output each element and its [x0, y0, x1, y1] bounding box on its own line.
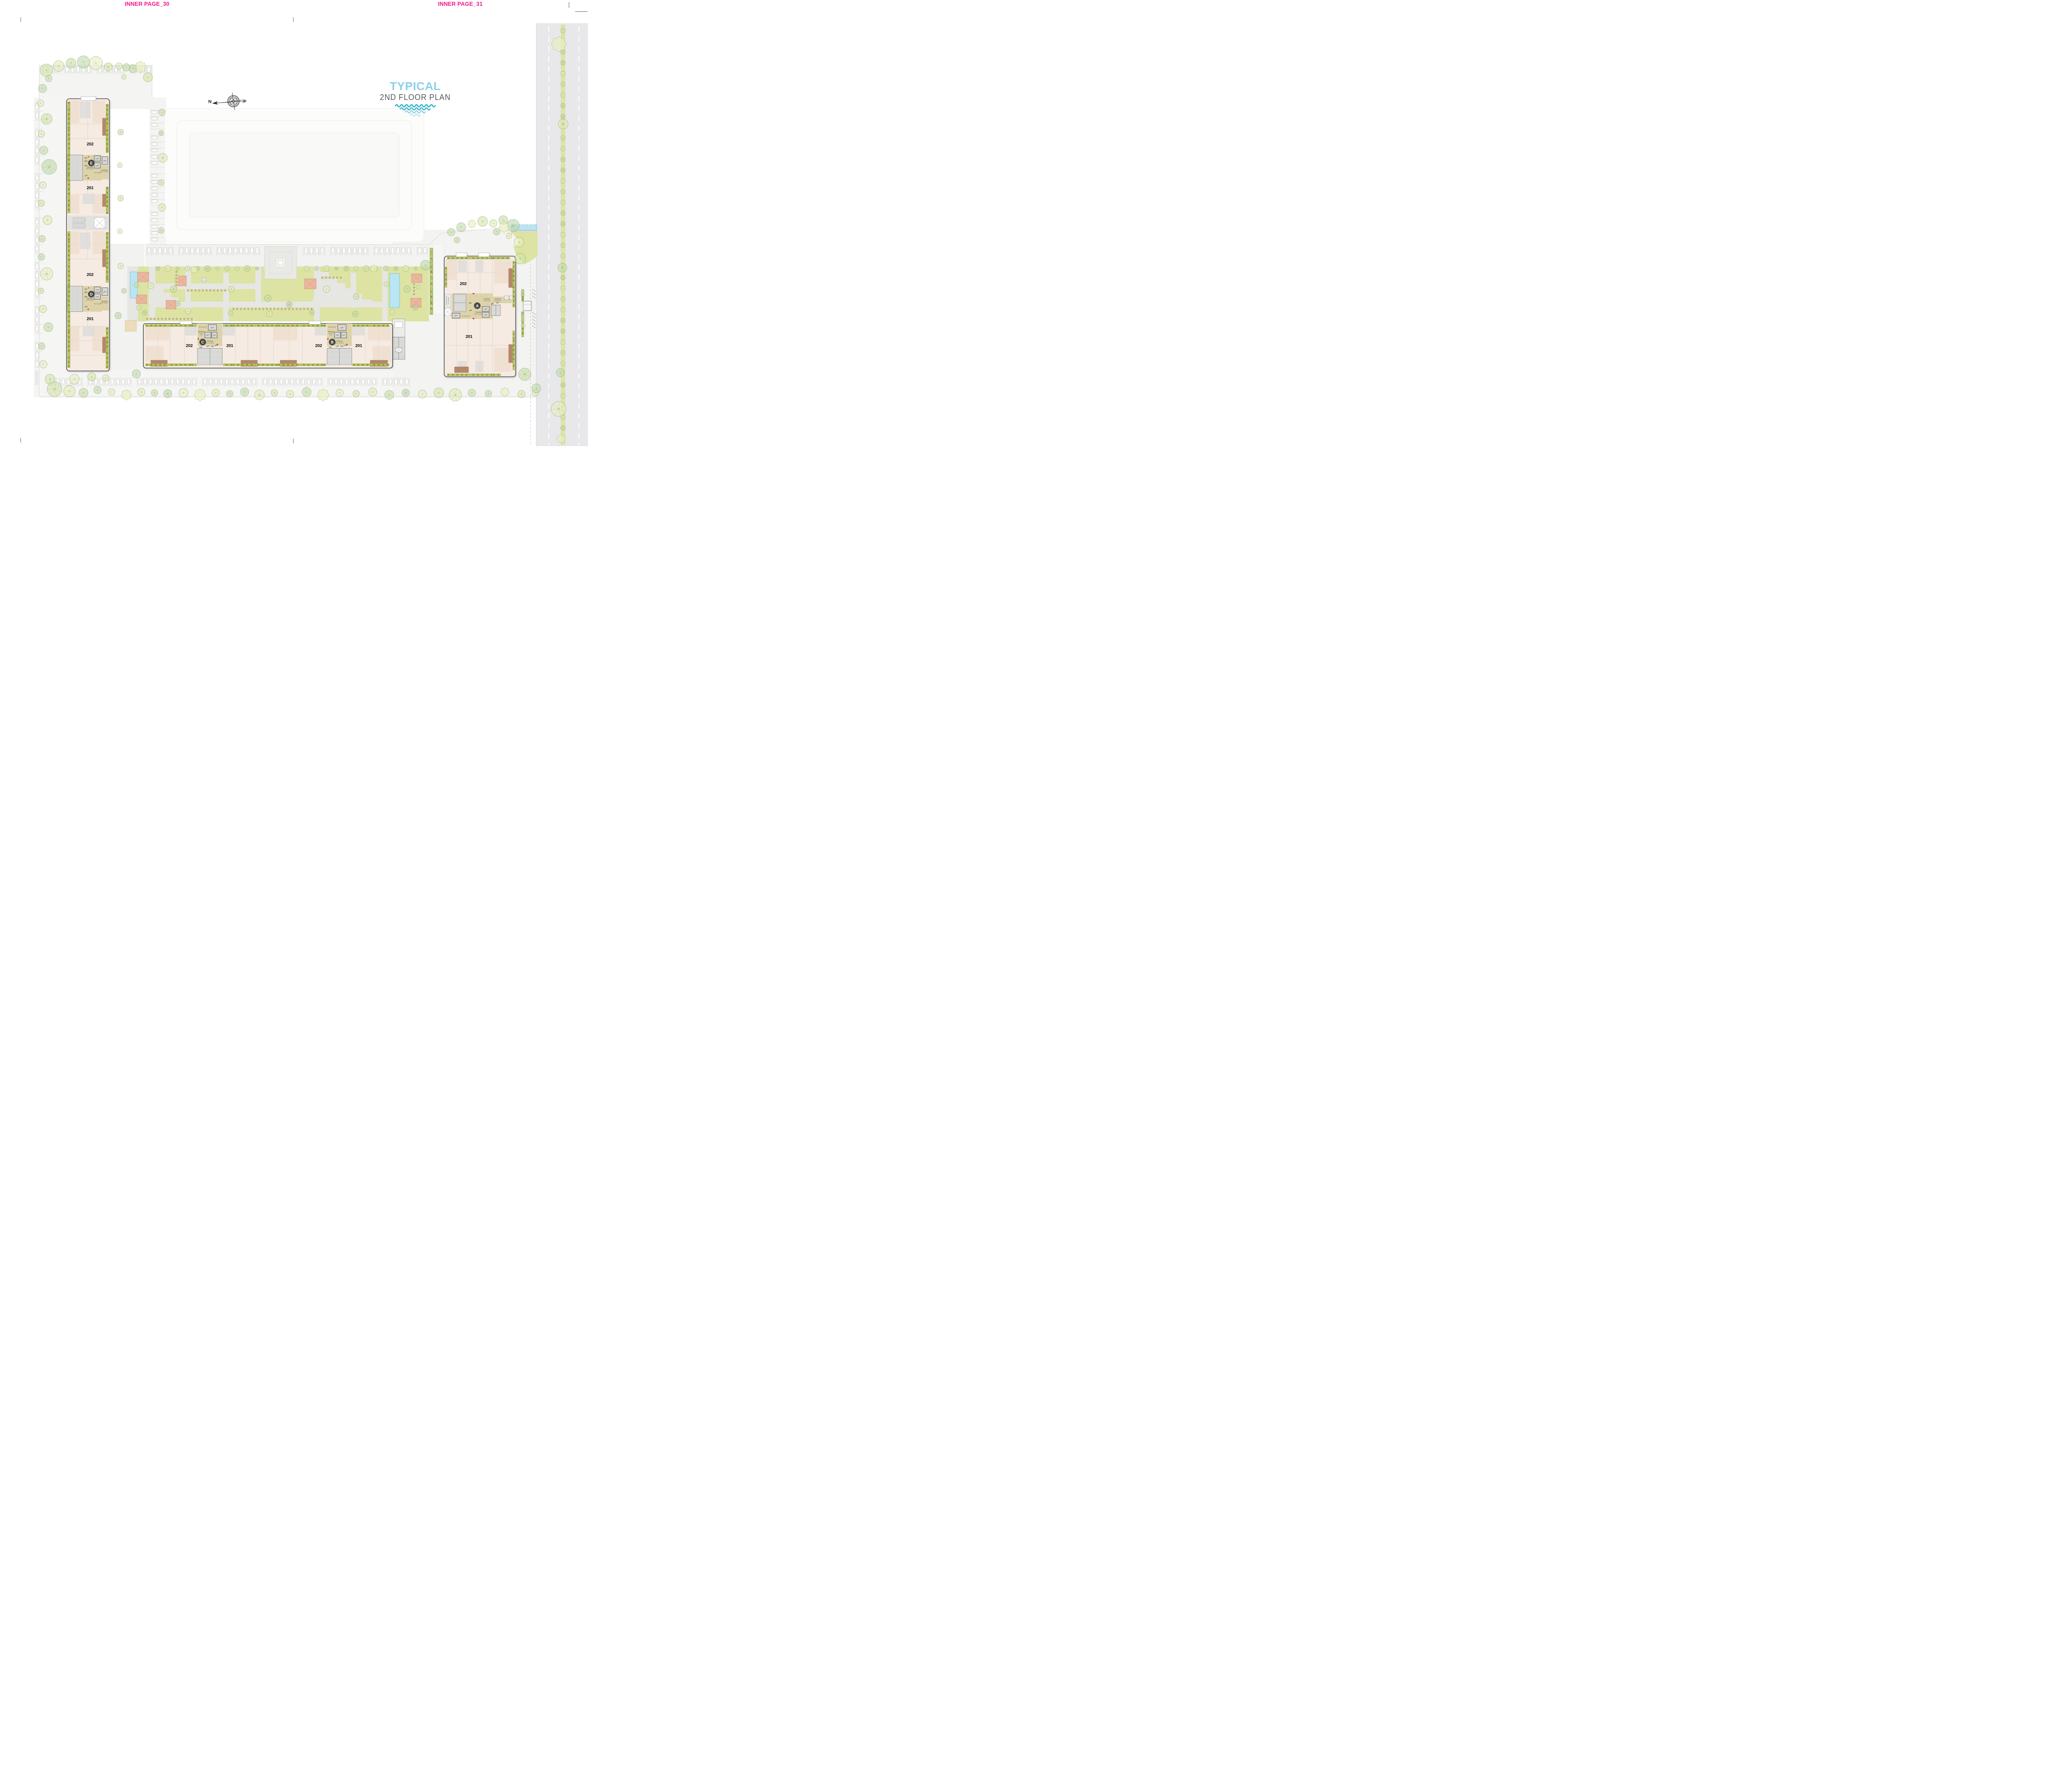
car-icon	[236, 378, 239, 385]
tree-icon	[116, 63, 122, 69]
tree-icon	[158, 204, 166, 211]
car-icon	[340, 378, 343, 385]
tree-icon	[40, 182, 46, 188]
up-label: UP	[85, 175, 87, 177]
tree-icon	[38, 200, 45, 207]
car-icon	[169, 247, 172, 254]
unit-label-202: 202	[460, 281, 467, 286]
car-icon	[400, 378, 403, 385]
car-icon	[151, 232, 158, 235]
car-icon	[307, 378, 310, 385]
up-label: UP	[469, 309, 472, 311]
block-badge-C: C	[201, 340, 204, 344]
gazebo-roof	[136, 295, 147, 304]
car-icon	[329, 378, 332, 385]
building-left-block-ED: LIFT LIFT LIFT UP DN DN UP E PASSAGE 9' …	[67, 97, 109, 371]
tree-icon	[561, 340, 565, 345]
car-icon	[242, 378, 245, 385]
tree-icon	[454, 237, 460, 243]
car-icon	[351, 378, 354, 385]
tree-icon	[354, 266, 358, 271]
car-icon	[247, 378, 250, 385]
car-icon	[291, 378, 294, 385]
car-icon	[245, 247, 248, 254]
car-icon	[88, 66, 90, 73]
car-icon	[151, 162, 158, 164]
car-icon	[231, 378, 234, 385]
tree-icon	[561, 383, 565, 387]
tree-icon	[478, 216, 488, 226]
car-icon	[367, 378, 370, 385]
car-icon	[256, 247, 259, 254]
tree-icon	[118, 263, 124, 269]
tree-icon	[314, 266, 319, 271]
car-icon	[36, 263, 38, 270]
car-icon	[36, 192, 38, 199]
passage-dim: 10' 7" X 6' 3"	[101, 171, 109, 173]
core-D: LIFT LIFT LIFT UP DN DN UP D PASSAGE 9' …	[67, 286, 109, 312]
tree-icon	[121, 74, 126, 79]
utility-block	[393, 319, 405, 359]
car-icon	[252, 378, 255, 385]
lift-label: LIFT	[103, 160, 107, 162]
tree-icon	[44, 323, 53, 332]
car-icon	[345, 378, 348, 385]
tree-icon	[39, 235, 45, 242]
car-icon	[250, 247, 253, 254]
lift-label: LIFT	[336, 334, 340, 336]
building-block-A: DN UP A PASSAGE 21' 2" X 10' 0" LIFT 5' …	[444, 253, 516, 377]
core-C: LIFT LIFT LIFT 8' 11" X 6' 4" PASSAGE 4'…	[198, 323, 223, 365]
tree-icon	[430, 255, 433, 258]
car-icon	[397, 247, 400, 254]
car-icon	[318, 378, 321, 385]
tree-icon	[514, 237, 524, 247]
lift-label: LIFT	[484, 308, 488, 310]
car-icon	[186, 247, 188, 254]
lift-label: LIFT	[340, 327, 344, 329]
tree-icon	[156, 266, 160, 271]
car-icon	[36, 326, 38, 332]
tree-icon	[121, 288, 126, 293]
car-icon	[353, 247, 356, 254]
car-icon	[151, 111, 158, 114]
car-icon	[36, 343, 38, 350]
car-icon	[418, 247, 421, 254]
lift-label: LIFT	[96, 289, 100, 291]
passage-dim: 7' 9" X 4' 0"	[483, 300, 491, 302]
passage-dim: 21' 2" X 10' 0"	[474, 314, 483, 315]
car-icon	[62, 378, 64, 385]
car-icon	[36, 157, 38, 163]
hedge-strip	[352, 364, 389, 366]
car-icon	[386, 247, 388, 254]
dn-label: DN	[491, 303, 494, 305]
car-icon	[274, 378, 277, 385]
unit-label-201: 201	[87, 185, 94, 190]
tree-icon	[500, 387, 509, 397]
car-icon	[373, 378, 376, 385]
hedge-strip	[513, 261, 515, 307]
car-icon	[76, 66, 79, 73]
passage-label: PASSAGE	[495, 298, 501, 300]
tree-icon	[561, 308, 565, 312]
tree-icon	[561, 114, 565, 119]
tree-icon	[40, 64, 52, 76]
tree-icon	[430, 249, 433, 252]
hedge-strip	[223, 364, 326, 366]
car-icon	[234, 247, 237, 254]
passage-dim: 6' 3" X 10' 7"	[101, 302, 109, 304]
tree-icon	[561, 318, 565, 323]
tree-icon	[94, 386, 101, 394]
up-label: UP	[496, 302, 499, 304]
lift-label: LIFT	[206, 334, 210, 336]
car-icon	[407, 247, 410, 254]
tree-icon	[38, 84, 47, 93]
tree-icon	[324, 266, 329, 271]
tree-icon	[561, 104, 565, 108]
passage-dim: 9' 6" X 23' 2"	[86, 168, 94, 170]
hedge-strip	[106, 327, 109, 368]
tree-icon	[335, 267, 338, 270]
tree-icon	[88, 373, 96, 381]
tree-icon	[158, 180, 164, 185]
hedge-strip	[513, 330, 515, 370]
car-icon	[36, 219, 38, 226]
tree-icon	[228, 311, 233, 316]
car-icon	[264, 378, 267, 385]
car-icon	[151, 149, 158, 152]
tree-icon	[38, 254, 45, 260]
car-icon	[196, 247, 199, 254]
tree-icon	[353, 294, 359, 299]
car-icon	[313, 378, 316, 385]
tree-icon	[47, 382, 62, 397]
car-icon	[36, 139, 38, 145]
tree-icon	[402, 389, 409, 397]
tree-icon	[430, 311, 433, 314]
car-icon	[305, 247, 307, 254]
tree-icon	[561, 286, 565, 291]
tree-icon	[515, 253, 526, 264]
lift-label: LIFT	[213, 334, 217, 336]
tree-icon	[179, 388, 188, 397]
tree-icon	[64, 385, 75, 397]
tree-icon	[561, 50, 565, 55]
tree-icon	[558, 119, 568, 129]
tree-icon	[175, 301, 180, 306]
car-icon	[202, 247, 205, 254]
tree-icon	[37, 100, 44, 107]
tree-icon	[403, 266, 409, 271]
car-icon	[36, 272, 38, 279]
block-badge-D: D	[90, 292, 93, 296]
wave-line	[410, 114, 420, 116]
tree-icon	[309, 310, 314, 315]
tree-icon	[490, 220, 497, 227]
tree-icon	[66, 58, 76, 68]
car-icon	[148, 247, 150, 254]
tree-icon	[561, 361, 565, 366]
tree-icon	[104, 63, 112, 71]
car-icon	[36, 352, 38, 359]
tree-icon	[561, 61, 565, 65]
car-icon	[36, 183, 38, 190]
car-icon	[151, 187, 158, 190]
tree-icon	[53, 61, 64, 71]
gazebo-roof	[412, 274, 422, 283]
tree-icon	[118, 129, 124, 135]
tree-icon	[286, 390, 294, 398]
passage-dim: 9' 6" X 23' 2"	[86, 299, 94, 301]
lift-label: LIFT	[96, 296, 100, 298]
lift-label: LIFT	[103, 291, 107, 293]
wave-line	[405, 111, 425, 113]
tree-icon	[449, 389, 462, 401]
tree-icon	[499, 222, 509, 233]
road	[531, 23, 588, 446]
tree-icon	[317, 389, 329, 401]
tree-icon	[561, 157, 565, 162]
car-icon	[36, 174, 38, 181]
tree-icon	[41, 114, 52, 124]
tree-icon	[228, 286, 234, 292]
car-icon	[321, 247, 324, 254]
gazebo-roof	[138, 272, 149, 282]
tree-icon	[138, 388, 145, 396]
dn-label: DN	[85, 160, 88, 162]
lift-label: LIFT	[484, 314, 488, 316]
tree-icon	[40, 361, 47, 368]
tree-icon	[212, 389, 219, 397]
tree-icon	[151, 390, 158, 396]
car-icon	[204, 378, 207, 385]
tree-icon	[430, 292, 433, 295]
car-icon	[165, 378, 168, 385]
car-icon	[380, 247, 383, 254]
tree-icon	[385, 390, 394, 399]
plan-title-line2: 2ND FLOOR PLAN	[368, 93, 463, 102]
tree-icon	[164, 390, 172, 398]
tree-icon	[102, 375, 109, 381]
car-icon	[176, 378, 179, 385]
tree-icon	[521, 319, 524, 322]
tree-icon	[394, 266, 398, 271]
car-icon	[155, 378, 157, 385]
car-icon	[158, 247, 161, 254]
car-icon	[383, 378, 386, 385]
tree-icon	[506, 233, 512, 239]
car-icon	[148, 66, 150, 73]
tree-icon	[77, 56, 90, 68]
tree-icon	[430, 304, 433, 308]
tree-icon	[561, 233, 565, 237]
hedge-strip	[447, 374, 501, 376]
car-icon	[151, 181, 158, 183]
car-icon	[153, 247, 156, 254]
tree-icon	[521, 312, 524, 316]
tree-icon	[40, 146, 48, 154]
car-icon	[151, 200, 158, 203]
tree-icon	[117, 229, 122, 234]
tree-icon	[286, 302, 292, 307]
tree-icon	[267, 311, 272, 317]
core-B: LIFT LIFT LIFT 8' 11" X 6' 4" PASSAGE 4'…	[327, 323, 352, 365]
tree-icon	[271, 390, 278, 396]
block-badge-A: A	[476, 304, 479, 308]
swimming-pool-east	[390, 273, 400, 308]
lift-label: LIFT	[96, 158, 100, 160]
car-icon	[389, 378, 392, 385]
tree-icon	[142, 310, 147, 315]
tree-icon	[383, 266, 388, 271]
tree-icon	[170, 286, 177, 292]
car-icon	[36, 361, 38, 368]
tree-icon	[158, 228, 164, 233]
unit-label-202: 202	[87, 142, 94, 147]
up-label: UP	[336, 345, 338, 347]
tree-icon	[205, 266, 210, 271]
car-icon	[269, 378, 272, 385]
up-label: UP	[85, 157, 87, 159]
tree-icon	[457, 223, 466, 232]
car-icon	[36, 308, 38, 314]
hedge-strip	[106, 187, 109, 214]
tree-icon	[561, 147, 565, 151]
car-icon	[116, 378, 119, 385]
car-icon	[209, 378, 212, 385]
dn-label: DN	[211, 345, 214, 347]
page-header-left: INNER PAGE_30	[102, 1, 193, 7]
car-icon	[151, 174, 158, 177]
tree-icon	[45, 75, 52, 82]
tree-icon	[561, 222, 565, 226]
car-icon	[225, 378, 228, 385]
car-icon	[151, 136, 158, 139]
tree-icon	[430, 298, 433, 302]
car-icon	[191, 247, 194, 254]
car-icon	[151, 212, 158, 215]
lift-label: LIFT	[342, 334, 346, 336]
sand-play-area	[125, 321, 136, 331]
car-icon	[218, 247, 221, 254]
car-icon	[111, 378, 114, 385]
tree-icon	[255, 267, 259, 270]
car-icon	[100, 378, 103, 385]
up-label: UP	[85, 306, 87, 308]
car-icon	[36, 245, 38, 252]
hedge-strip	[223, 324, 326, 327]
car-icon	[343, 247, 345, 254]
tree-icon	[118, 195, 124, 201]
tree-icon	[518, 390, 525, 398]
tree-icon	[561, 168, 565, 173]
tree-icon	[557, 434, 566, 443]
tree-icon	[561, 93, 565, 97]
tree-icon	[434, 388, 444, 398]
lift-label: LIFT	[455, 315, 458, 317]
car-icon	[36, 112, 38, 119]
entry-dim: 8' 11" X 6' 4"	[199, 326, 207, 328]
car-icon	[171, 378, 174, 385]
car-icon	[151, 193, 158, 196]
car-icon	[229, 247, 232, 254]
tree-icon	[353, 390, 359, 397]
car-icon	[362, 378, 364, 385]
car-icon	[151, 117, 158, 120]
tree-icon	[117, 163, 122, 168]
tree-icon	[323, 286, 330, 292]
car-icon	[122, 378, 125, 385]
gazebo-roof	[166, 300, 176, 309]
tree-icon	[190, 266, 198, 273]
ac-note: OUT DOOR	[448, 297, 450, 304]
unit-label-201: 201	[355, 343, 362, 348]
central-plaza	[264, 247, 297, 279]
car-icon	[334, 378, 337, 385]
car-icon	[359, 247, 362, 254]
tree-icon	[430, 273, 433, 277]
car-icon	[424, 247, 426, 254]
tree-icon	[42, 159, 57, 174]
tree-icon	[136, 305, 141, 310]
tree-icon	[135, 61, 146, 73]
car-icon	[207, 247, 210, 254]
tree-icon	[344, 266, 349, 271]
hedge-strip	[352, 324, 389, 327]
tree-icon	[551, 36, 567, 52]
lift-label: LIFT	[211, 327, 214, 329]
tree-icon	[430, 280, 433, 283]
tree-icon	[561, 351, 565, 355]
car-icon	[302, 378, 305, 385]
unit-label-202: 202	[186, 343, 193, 348]
dn-label: DN	[469, 302, 472, 304]
car-icon	[395, 378, 397, 385]
passage-label: PASSAGE	[475, 311, 482, 313]
car-icon	[193, 378, 195, 385]
tree-icon	[115, 312, 121, 319]
tree-icon	[38, 343, 45, 349]
car-icon	[187, 378, 190, 385]
unit-label-201: 201	[226, 343, 233, 348]
plan-title: TYPICAL 2ND FLOOR PLAN	[364, 80, 467, 118]
tree-icon	[561, 211, 565, 216]
tree-icon	[561, 200, 565, 205]
tree-icon	[532, 384, 541, 393]
tree-icon	[468, 389, 476, 397]
lobby-dim: 5' 11" X 6' 4"	[462, 316, 470, 317]
car-icon	[391, 247, 394, 254]
hedge-strip	[67, 102, 70, 213]
core-E: LIFT LIFT LIFT UP DN DN UP E PASSAGE 9' …	[67, 155, 109, 181]
tree-icon	[148, 283, 154, 289]
unit-label-202: 202	[315, 343, 322, 348]
tree-icon	[79, 388, 88, 397]
up-label: UP	[207, 345, 209, 347]
tree-icon	[558, 263, 567, 272]
tree-icon	[185, 308, 191, 314]
car-icon	[375, 247, 378, 254]
tree-icon	[69, 374, 79, 384]
tree-icon	[413, 305, 418, 310]
car-icon	[331, 247, 334, 254]
tree-icon	[132, 370, 140, 378]
car-icon	[182, 378, 185, 385]
site-plan: LIFT LIFT LIFT UP DN DN UP E PASSAGE 9' …	[0, 0, 588, 448]
building-bottom-block-CB: LIFT LIFT LIFT 8' 11" X 6' 4" PASSAGE 4'…	[143, 321, 393, 368]
